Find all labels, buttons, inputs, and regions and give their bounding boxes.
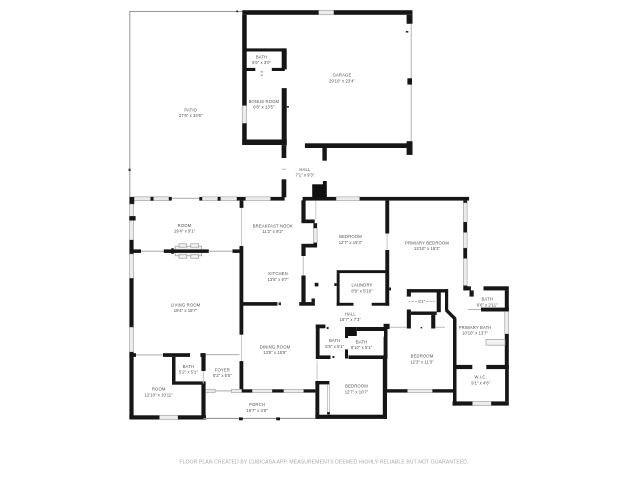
- svg-text:BATH: BATH: [329, 338, 340, 343]
- svg-text:5'1": 5'1": [418, 299, 425, 304]
- svg-text:7'1" x 9'3": 7'1" x 9'3": [295, 172, 314, 177]
- svg-text:LIVING ROOM: LIVING ROOM: [171, 302, 201, 307]
- svg-text:PRIMARY BATH: PRIMARY BATH: [459, 325, 492, 330]
- svg-text:12'3" x 11'3": 12'3" x 11'3": [410, 359, 434, 364]
- svg-text:10'10" x 13'7": 10'10" x 13'7": [462, 331, 488, 336]
- svg-text:BATH: BATH: [183, 364, 194, 369]
- svg-text:PRIMARY BEDROOM: PRIMARY BEDROOM: [405, 240, 449, 245]
- svg-text:12'7" x 15'3": 12'7" x 15'3": [339, 240, 363, 245]
- svg-text:BATH: BATH: [356, 339, 367, 344]
- svg-text:HALL: HALL: [345, 312, 357, 317]
- svg-text:5'5" x 5'1": 5'5" x 5'1": [325, 344, 344, 349]
- svg-text:ROOM: ROOM: [178, 223, 192, 228]
- svg-text:13'5" x 15'5": 13'5" x 15'5": [263, 350, 287, 355]
- svg-text:16'7" x 7'3": 16'7" x 7'3": [340, 317, 362, 322]
- svg-text:8'9" x 5'10": 8'9" x 5'10": [351, 289, 373, 294]
- svg-text:12'10" x 10'11": 12'10" x 10'11": [145, 392, 174, 397]
- svg-text:9'1" x 4'6": 9'1" x 4'6": [471, 380, 490, 385]
- svg-text:BONUS ROOM: BONUS ROOM: [249, 99, 280, 104]
- svg-text:BATH: BATH: [256, 55, 267, 60]
- svg-text:13'5" x 9'7": 13'5" x 9'7": [267, 277, 289, 282]
- svg-text:BEDROOM: BEDROOM: [339, 234, 362, 239]
- svg-text:LAUNDRY: LAUNDRY: [352, 282, 373, 287]
- svg-text:FOYER: FOYER: [215, 367, 230, 372]
- svg-text:HALL: HALL: [299, 167, 311, 172]
- svg-text:KITCHEN: KITCHEN: [268, 271, 287, 276]
- svg-text:PORCH: PORCH: [249, 402, 265, 407]
- svg-text:GARAGE: GARAGE: [333, 73, 352, 78]
- svg-text:12'7" x 10'7": 12'7" x 10'7": [345, 390, 369, 395]
- svg-text:PATIO: PATIO: [184, 107, 197, 112]
- svg-text:FLOOR PLAN CREATED BY CUBICASA: FLOOR PLAN CREATED BY CUBICASA APP. MEAS…: [179, 459, 468, 465]
- svg-text:6'6" x 3'0": 6'6" x 3'0": [252, 60, 271, 65]
- svg-text:BEDROOM: BEDROOM: [411, 353, 434, 358]
- svg-text:ROOM: ROOM: [152, 386, 166, 391]
- svg-text:19'4" x 9'1": 19'4" x 9'1": [174, 228, 196, 233]
- svg-text:19'7" x 4'9": 19'7" x 4'9": [246, 408, 268, 413]
- svg-text:29'10" x 23'4": 29'10" x 23'4": [329, 78, 355, 83]
- svg-text:5'2" x 5'1": 5'2" x 5'1": [179, 370, 198, 375]
- svg-text:13'10" x 16'3": 13'10" x 16'3": [414, 246, 440, 251]
- svg-text:6'10" x 5'1": 6'10" x 5'1": [351, 345, 373, 350]
- svg-text:BATH: BATH: [481, 297, 492, 302]
- svg-text:19'4" x 18'7": 19'4" x 18'7": [174, 308, 198, 313]
- svg-text:BREAKFAST NOOK: BREAKFAST NOOK: [253, 224, 293, 229]
- svg-text:11'2" x 9'2": 11'2" x 9'2": [262, 229, 283, 234]
- svg-text:W.I.C.: W.I.C.: [475, 374, 487, 379]
- svg-text:6'6" x 2'11": 6'6" x 2'11": [477, 303, 498, 308]
- svg-text:6'8" x 13'5": 6'8" x 13'5": [253, 105, 275, 110]
- svg-text:6'2" x 6'5": 6'2" x 6'5": [213, 373, 232, 378]
- svg-text:DINING ROOM: DINING ROOM: [260, 345, 291, 350]
- svg-text:27'6" x 33'6": 27'6" x 33'6": [179, 113, 203, 118]
- svg-text:BEDROOM: BEDROOM: [345, 384, 368, 389]
